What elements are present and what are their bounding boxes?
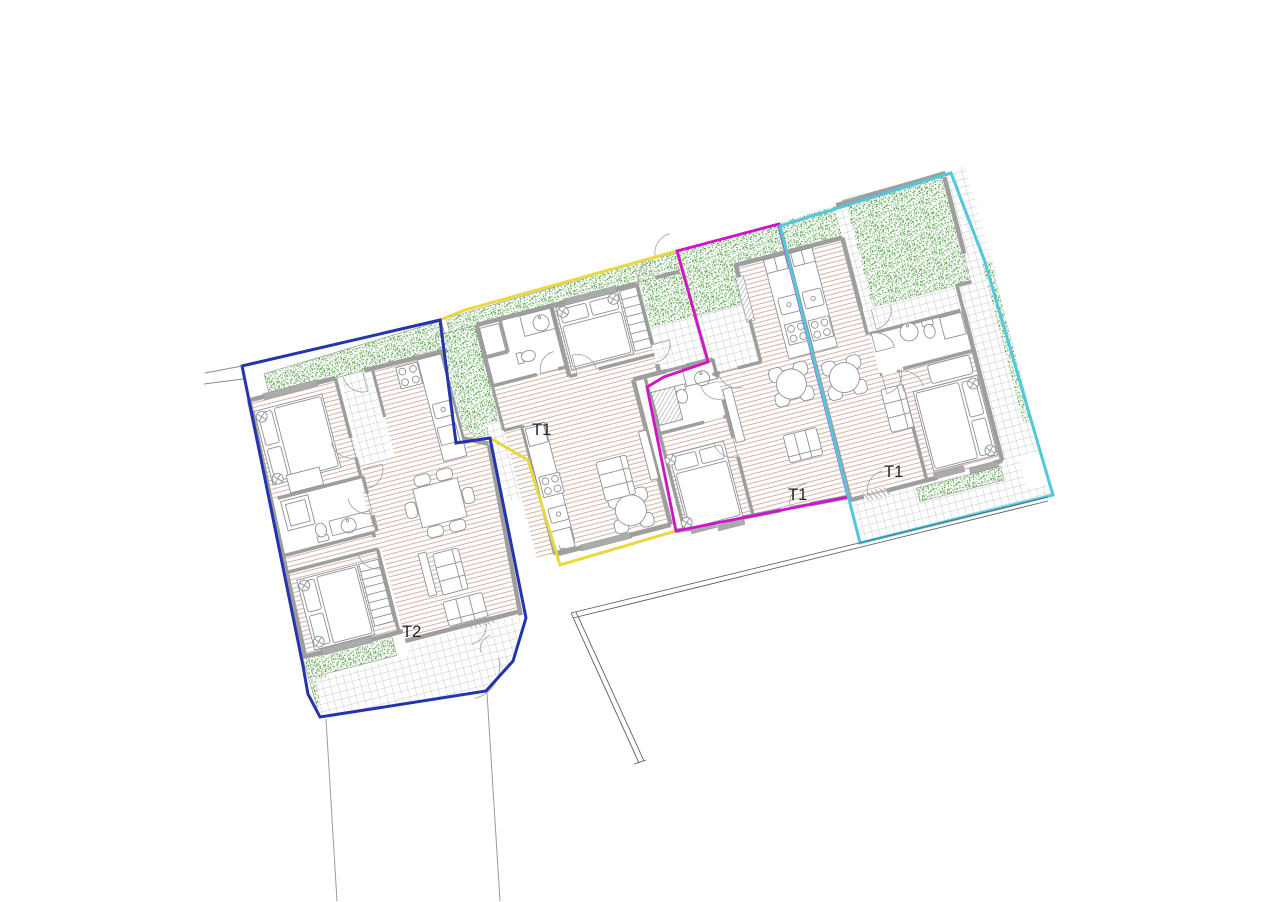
svg-text:T1: T1 [532,421,551,439]
svg-text:T2: T2 [402,623,421,641]
svg-text:T1: T1 [788,486,807,504]
svg-text:T1: T1 [884,463,903,481]
